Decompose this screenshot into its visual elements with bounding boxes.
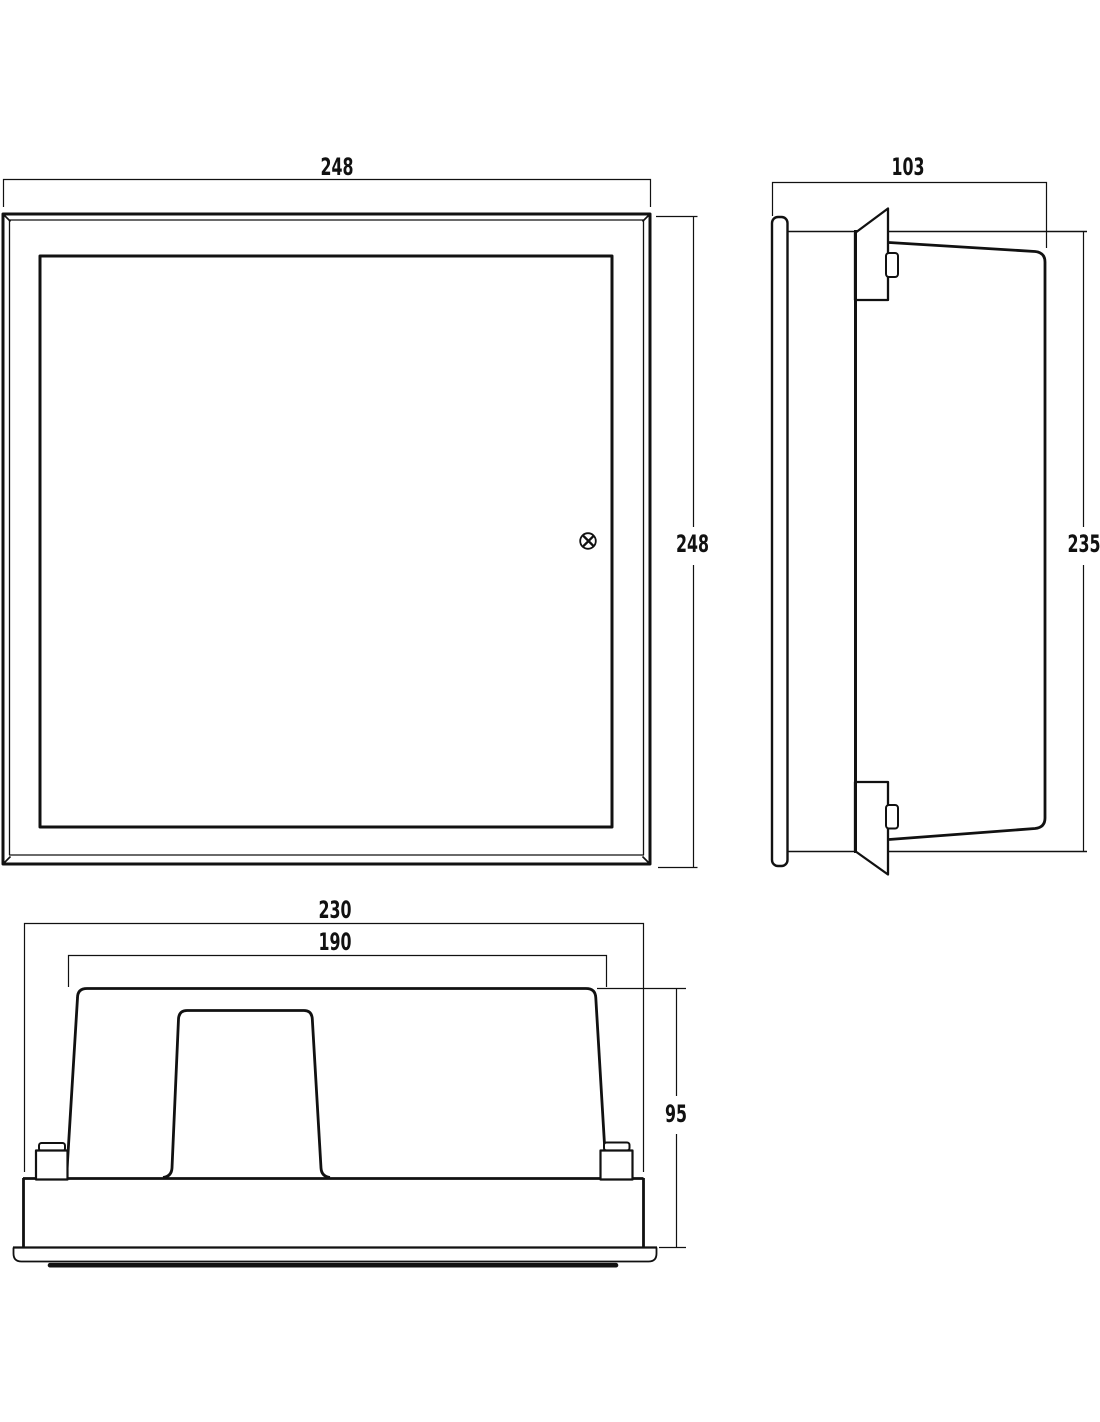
side-height-label: 235 — [1068, 530, 1100, 558]
bottom-view: 230 190 95 — [13, 896, 687, 1265]
front-width-dim-line — [4, 180, 651, 208]
side-view: 103 235 — [772, 153, 1100, 875]
side-depth-label: 103 — [892, 153, 925, 181]
side-depth-dim-line — [773, 183, 1047, 249]
three-view-drawing: 248 248 103 235 230 1 — [0, 0, 1100, 1422]
bottom-body-outline — [67, 989, 607, 1179]
side-door-profile — [889, 243, 1045, 840]
side-top-wedge-bracket — [855, 209, 888, 301]
bottom-plate-sides — [24, 1178, 644, 1248]
bottom-height-label: 95 — [665, 1100, 687, 1128]
side-bottom-clip-tab — [886, 805, 898, 829]
technical-drawing-canvas: 248 248 103 235 230 1 — [0, 0, 1100, 1422]
front-view: 248 248 — [3, 153, 709, 868]
bottom-inner-width-label: 190 — [319, 928, 352, 956]
front-width-label: 248 — [321, 153, 354, 181]
bottom-flange-outline — [14, 1248, 657, 1262]
right-clip-body — [601, 1151, 633, 1180]
bottom-outer-width-label: 230 — [319, 896, 352, 924]
front-door-panel — [40, 256, 612, 827]
side-bottom-wedge-bracket — [855, 782, 888, 875]
bottom-inner-width-dim-line — [69, 956, 607, 988]
side-front-flange — [772, 217, 788, 866]
side-top-clip-tab — [886, 253, 898, 277]
left-clip-body — [36, 1151, 68, 1180]
right-clip-cap — [604, 1143, 630, 1151]
front-height-label: 248 — [676, 530, 709, 558]
